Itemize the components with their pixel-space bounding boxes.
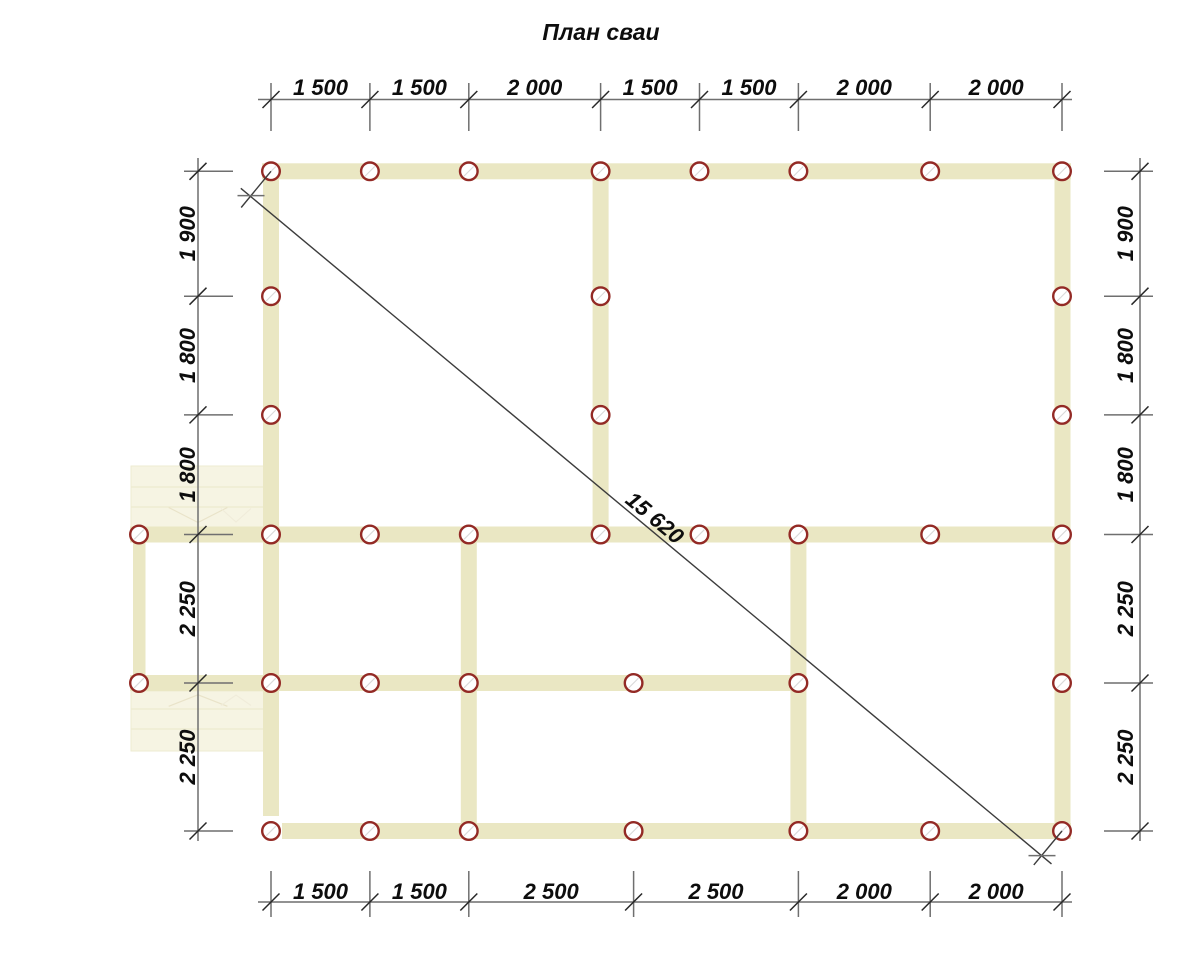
svg-text:1 500: 1 500 [392, 75, 448, 100]
svg-text:План сваи: План сваи [542, 19, 659, 45]
svg-text:1 500: 1 500 [721, 75, 777, 100]
svg-text:2 000: 2 000 [506, 75, 563, 100]
svg-text:1 800: 1 800 [175, 446, 200, 502]
svg-text:2 250: 2 250 [175, 729, 200, 786]
svg-text:1 800: 1 800 [1113, 327, 1138, 383]
svg-text:1 500: 1 500 [293, 75, 349, 100]
svg-text:1 500: 1 500 [392, 879, 448, 904]
svg-text:1 800: 1 800 [175, 327, 200, 383]
svg-text:1 900: 1 900 [175, 205, 200, 261]
svg-text:2 250: 2 250 [1113, 729, 1138, 786]
svg-text:2 250: 2 250 [1113, 580, 1138, 637]
svg-text:2 000: 2 000 [836, 75, 893, 100]
svg-text:1 900: 1 900 [1113, 205, 1138, 261]
svg-text:2 500: 2 500 [523, 879, 580, 904]
svg-text:2 000: 2 000 [836, 879, 893, 904]
svg-text:2 500: 2 500 [687, 879, 744, 904]
svg-text:1 800: 1 800 [1113, 446, 1138, 502]
svg-text:1 500: 1 500 [623, 75, 679, 100]
svg-text:1 500: 1 500 [293, 879, 349, 904]
svg-text:2 250: 2 250 [175, 580, 200, 637]
svg-text:2 000: 2 000 [968, 879, 1025, 904]
svg-text:2 000: 2 000 [968, 75, 1025, 100]
